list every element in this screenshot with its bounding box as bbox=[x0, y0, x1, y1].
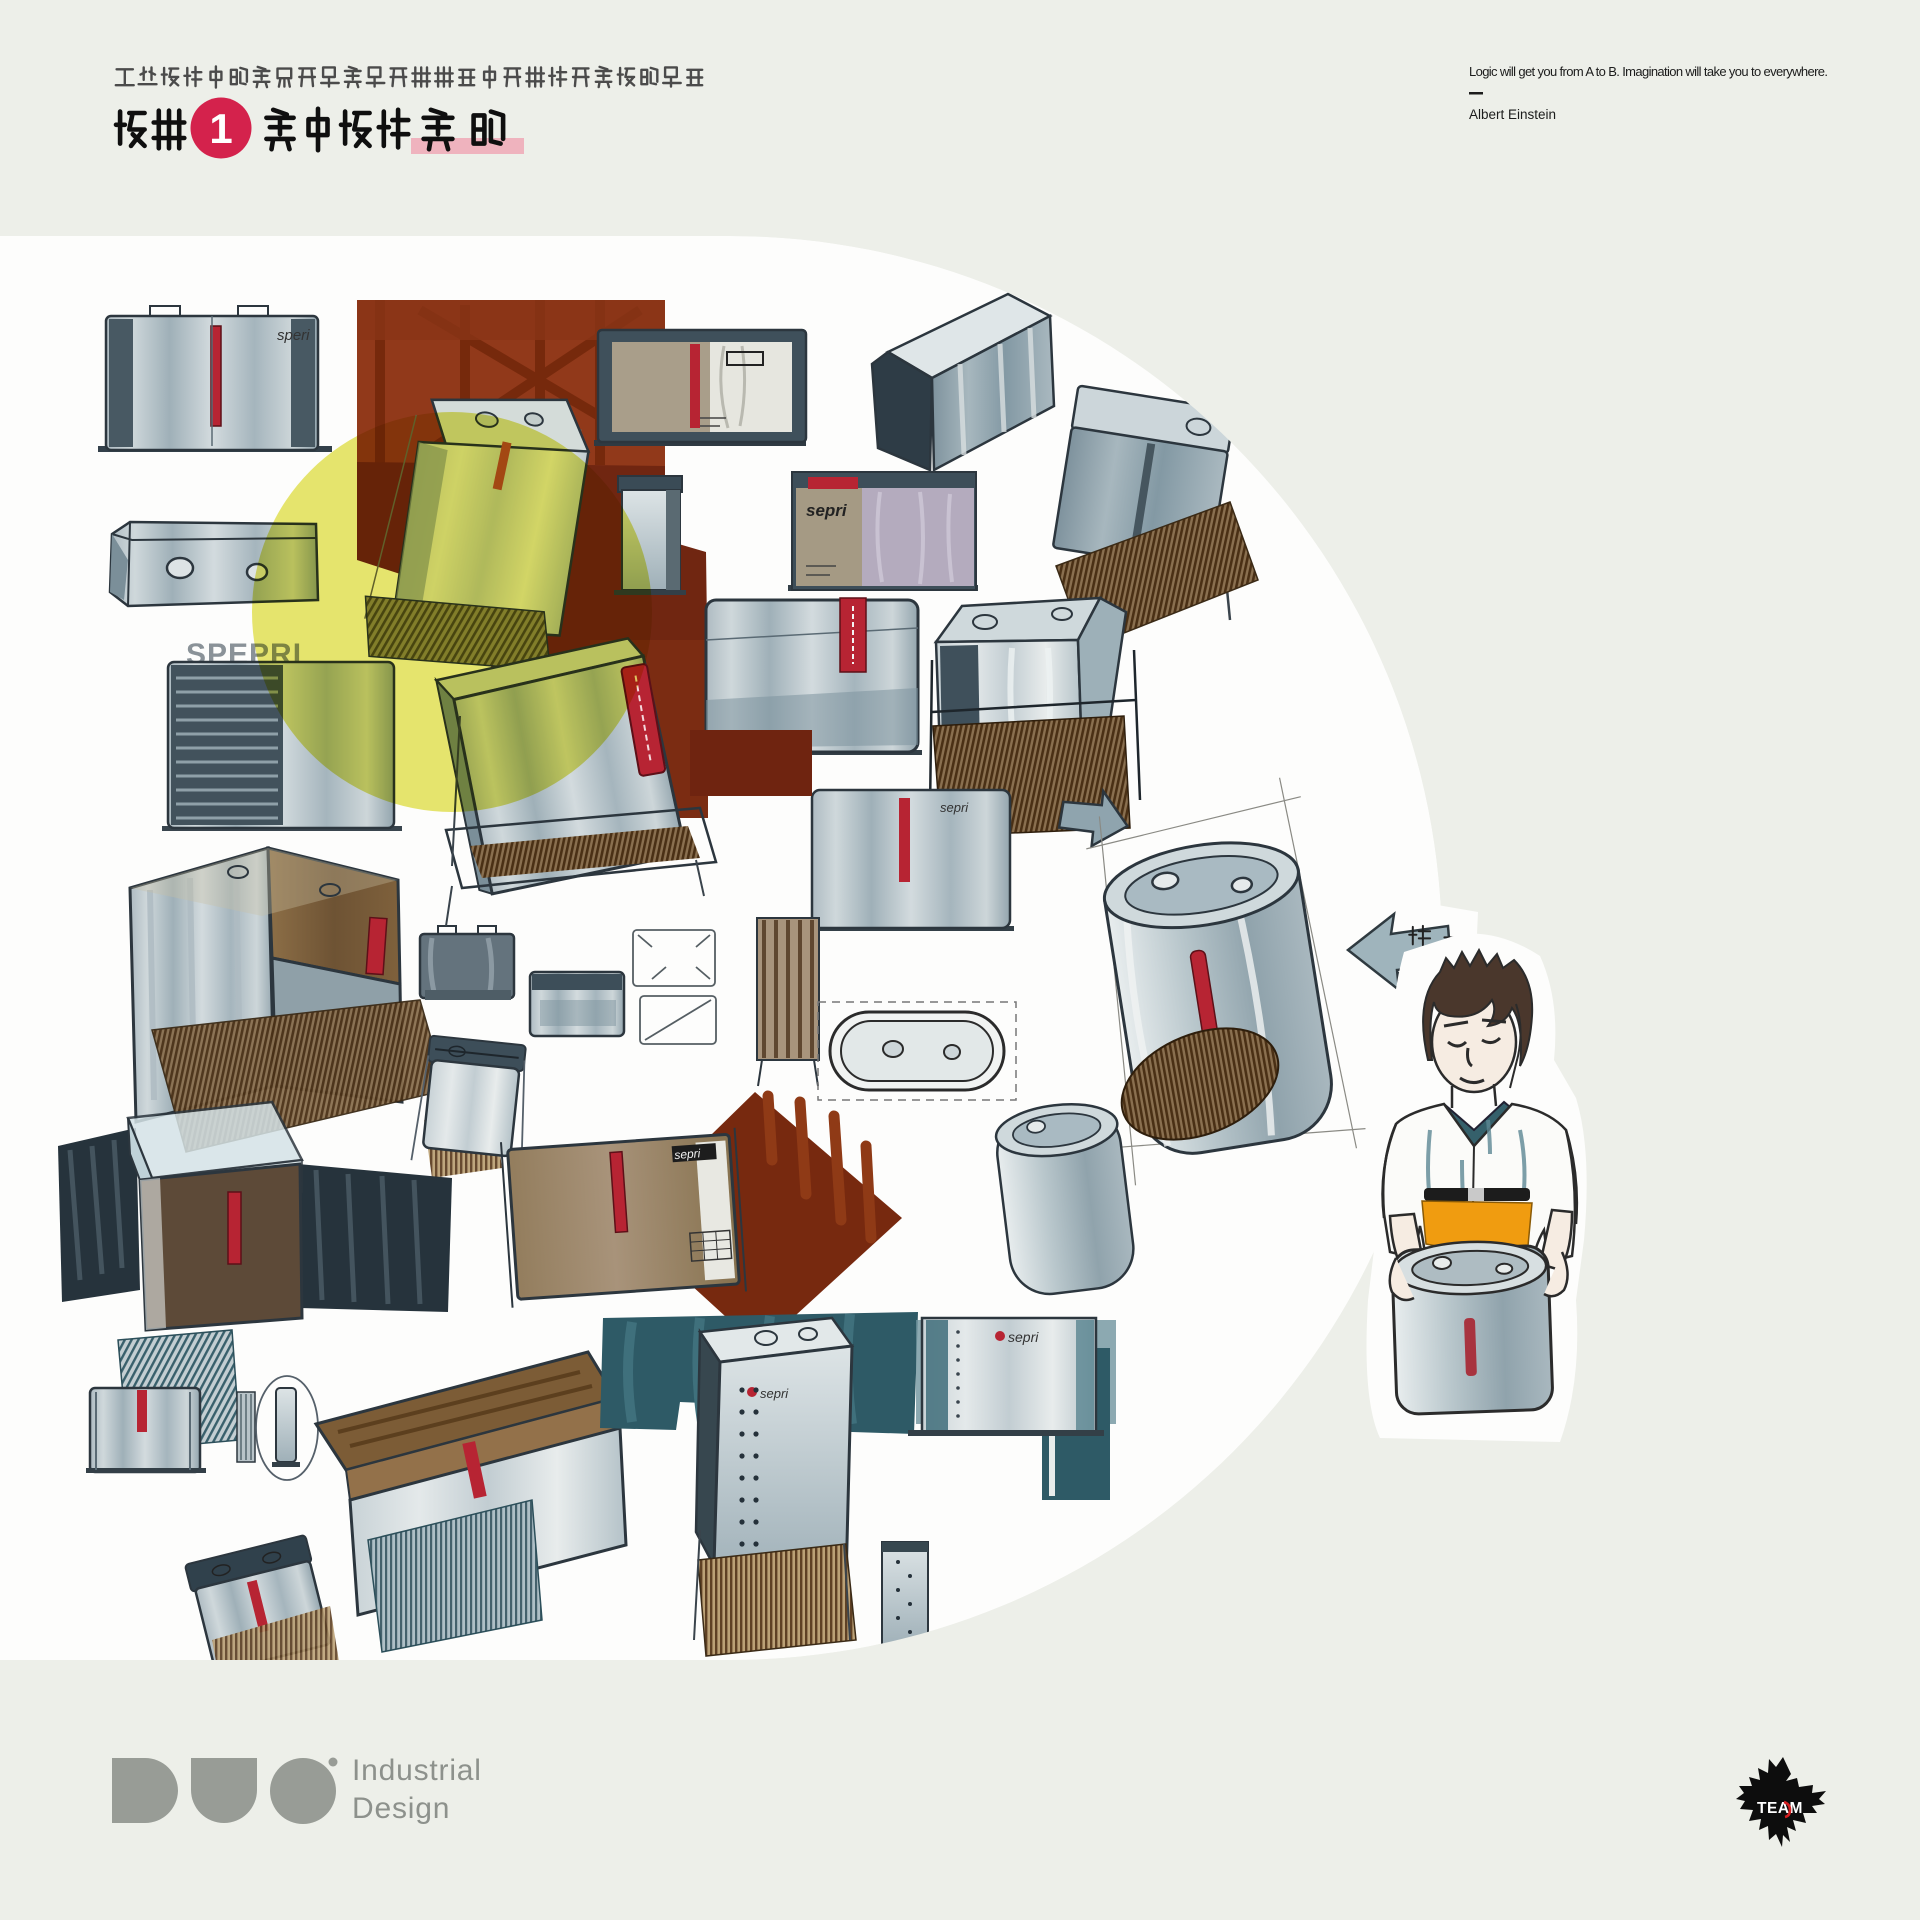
svg-text:sepri: sepri bbox=[1008, 1329, 1039, 1345]
svg-text:1: 1 bbox=[209, 105, 232, 152]
svg-text:Albert Einstein: Albert Einstein bbox=[1469, 107, 1556, 122]
svg-text:speri: speri bbox=[277, 327, 310, 344]
svg-text:Industrial: Industrial bbox=[352, 1754, 482, 1787]
svg-text:sepri: sepri bbox=[806, 501, 848, 520]
svg-text:Logic will get you from A to B: Logic will get you from A to B. Imaginat… bbox=[1469, 64, 1828, 79]
svg-text:sepri: sepri bbox=[674, 1146, 701, 1162]
svg-text:sepri: sepri bbox=[760, 1386, 789, 1401]
svg-text:sepri: sepri bbox=[940, 800, 969, 815]
svg-text:Design: Design bbox=[352, 1792, 450, 1825]
svg-text:TEAM: TEAM bbox=[1757, 1800, 1803, 1817]
